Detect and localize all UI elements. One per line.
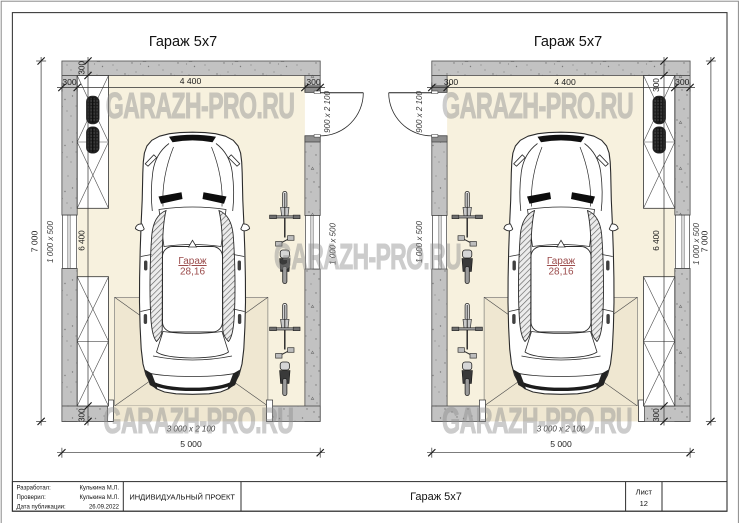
svg-text:300: 300 [652, 408, 661, 422]
svg-text:1 000 x 500: 1 000 x 500 [692, 223, 701, 265]
svg-text:300: 300 [306, 77, 321, 87]
svg-text:Разработал:: Разработал: [17, 485, 52, 491]
svg-text:12: 12 [640, 499, 648, 508]
svg-text:GARAZH-PRO.RU: GARAZH-PRO.RU [274, 236, 461, 277]
svg-text:GARAZH-PRO.RU: GARAZH-PRO.RU [106, 85, 294, 126]
svg-text:28,16: 28,16 [548, 267, 573, 278]
svg-text:6 400: 6 400 [652, 230, 661, 251]
svg-text:Гараж 5x7: Гараж 5x7 [534, 34, 602, 50]
svg-text:300: 300 [77, 408, 86, 422]
svg-text:300: 300 [675, 77, 690, 87]
svg-text:Гараж 5x7: Гараж 5x7 [149, 34, 217, 50]
svg-text:1 000 x 500: 1 000 x 500 [46, 221, 55, 263]
svg-text:300: 300 [77, 61, 86, 75]
svg-text:GARAZH-PRO.RU: GARAZH-PRO.RU [103, 400, 293, 441]
svg-text:Кулькина М.Л.: Кулькина М.Л. [79, 495, 119, 501]
svg-text:900 x 2 100: 900 x 2 100 [323, 91, 332, 133]
svg-text:Кулькина М.Л.: Кулькина М.Л. [79, 485, 119, 491]
svg-text:Проверил:: Проверил: [17, 495, 47, 501]
svg-text:300: 300 [62, 77, 77, 87]
svg-text:GARAZH-PRO.RU: GARAZH-PRO.RU [442, 400, 632, 441]
svg-text:Лист: Лист [636, 488, 653, 497]
svg-text:900 x 2 100: 900 x 2 100 [415, 91, 424, 133]
svg-text:28,16: 28,16 [180, 267, 205, 278]
svg-text:300: 300 [652, 78, 661, 92]
svg-text:Гараж 5x7: Гараж 5x7 [410, 491, 462, 503]
svg-text:6 400: 6 400 [77, 230, 86, 251]
svg-text:7 000: 7 000 [30, 231, 40, 253]
svg-text:Дата публикации:: Дата публикации: [17, 505, 67, 511]
svg-text:Гараж: Гараж [547, 256, 576, 267]
svg-text:Гараж: Гараж [178, 256, 207, 267]
svg-text:26.09.2022: 26.09.2022 [89, 505, 120, 511]
svg-text:ИНДИВИДУАЛЬНЫЙ ПРОЕКТ: ИНДИВИДУАЛЬНЫЙ ПРОЕКТ [129, 493, 235, 502]
svg-text:GARAZH-PRO.RU: GARAZH-PRO.RU [442, 85, 633, 126]
